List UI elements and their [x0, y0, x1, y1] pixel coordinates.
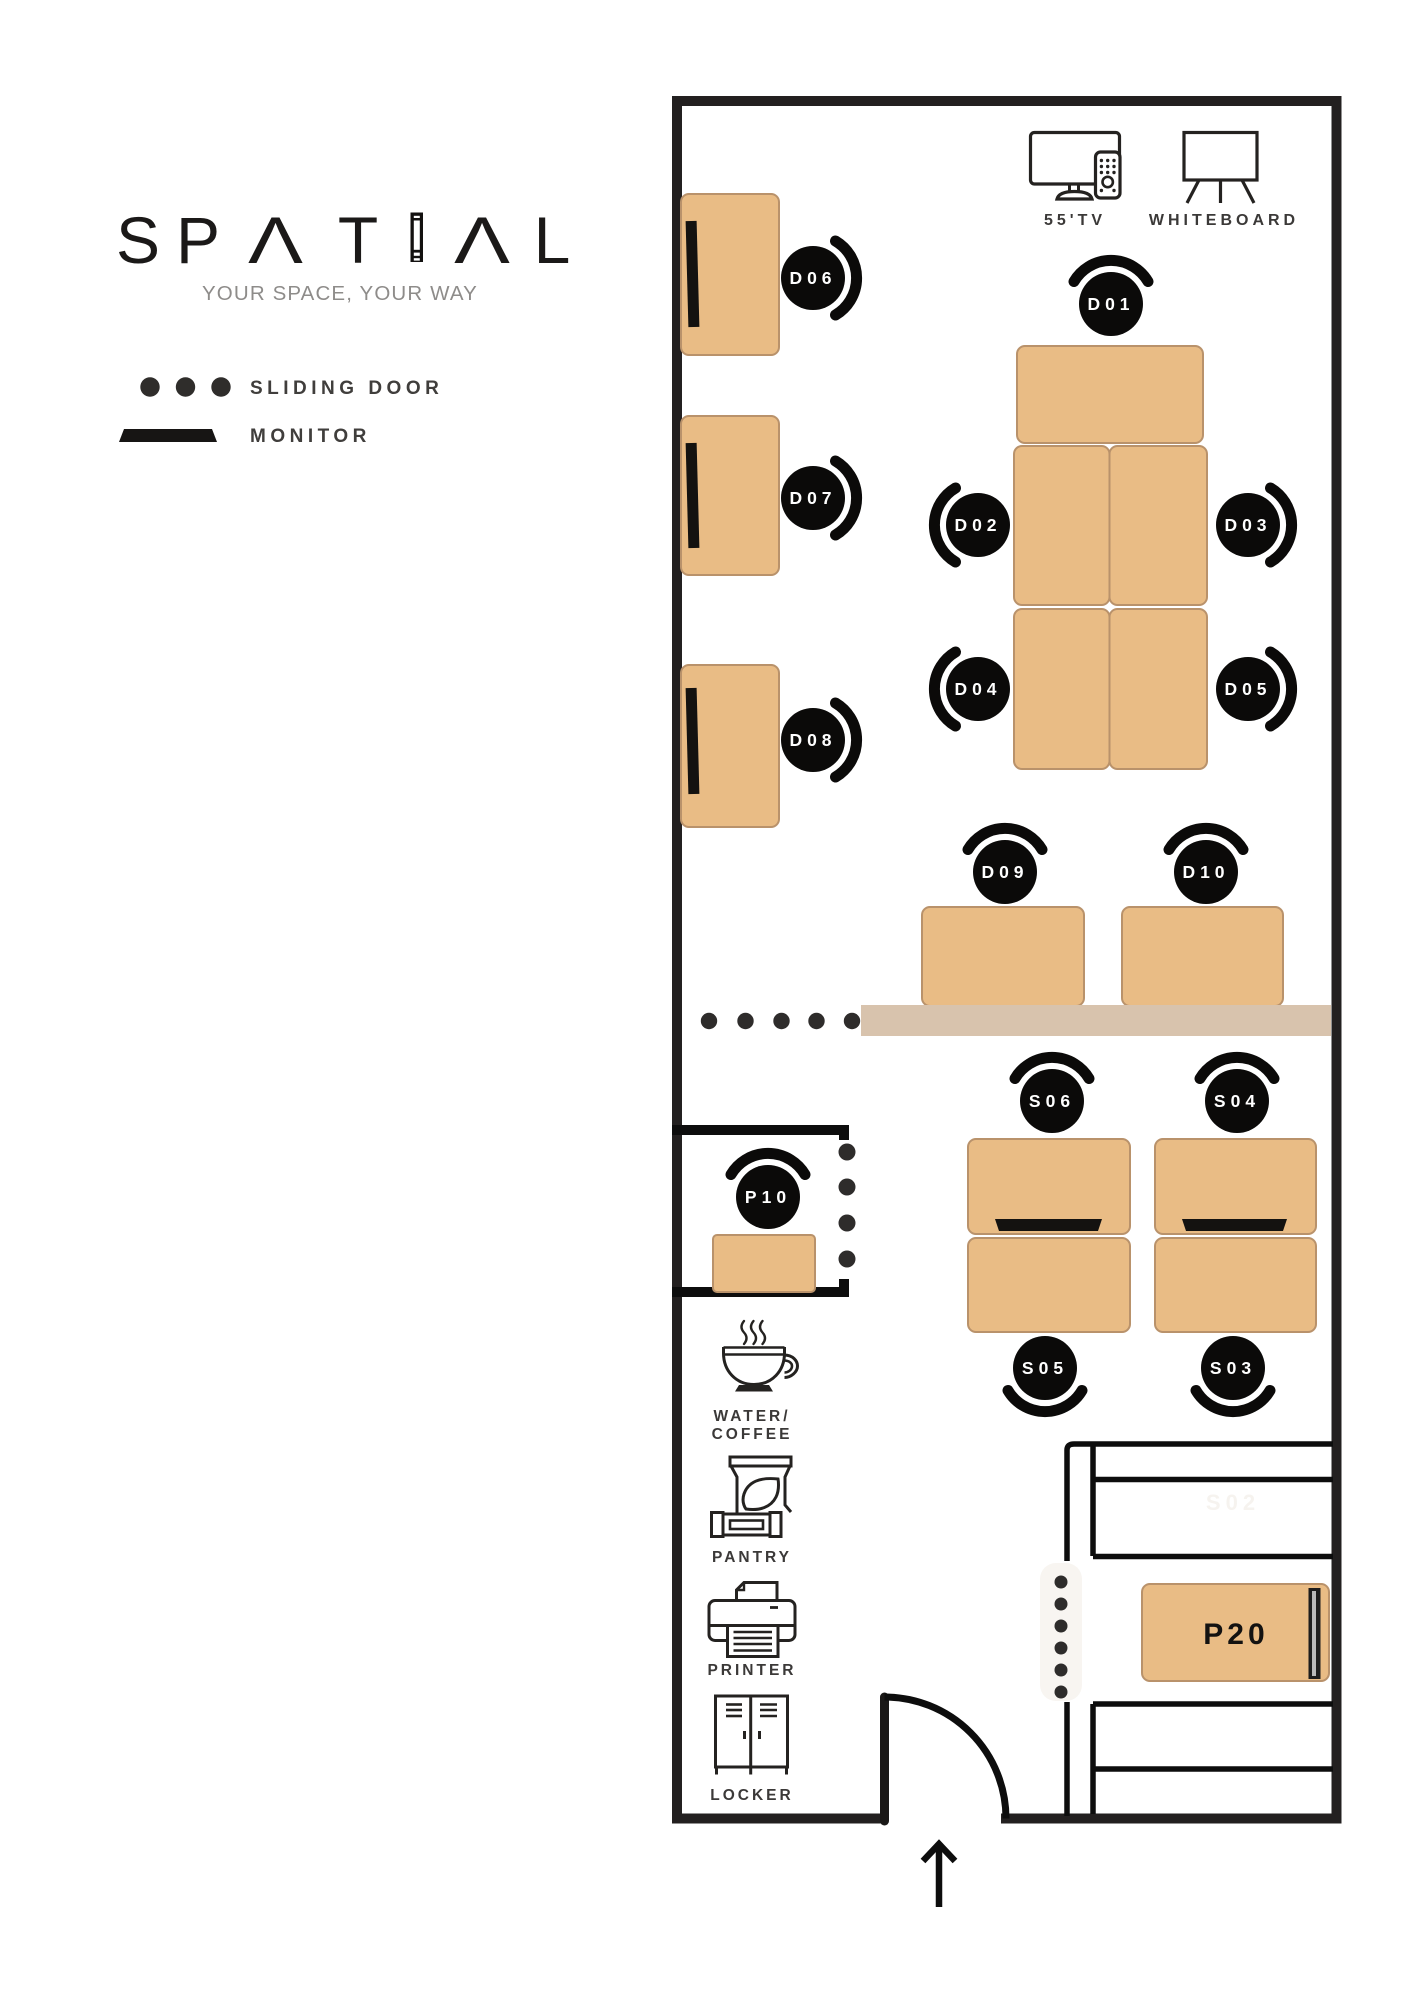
svg-text:WATER/: WATER/	[713, 1408, 790, 1425]
svg-text:L: L	[534, 203, 571, 277]
svg-text:Λ: Λ	[454, 203, 510, 277]
svg-text:D05: D05	[1224, 679, 1271, 699]
svg-text:55'TV: 55'TV	[1044, 212, 1106, 229]
svg-text:S: S	[116, 203, 160, 277]
svg-text:P: P	[176, 203, 220, 277]
svg-text:S05: S05	[1022, 1358, 1068, 1378]
svg-text:MONITOR: MONITOR	[250, 426, 371, 447]
svg-text:D10: D10	[1182, 862, 1229, 882]
svg-text:S06: S06	[1029, 1091, 1075, 1111]
svg-text:D04: D04	[954, 679, 1001, 699]
svg-text:D01: D01	[1087, 294, 1134, 314]
svg-text:S03: S03	[1210, 1358, 1256, 1378]
svg-text:D09: D09	[981, 862, 1028, 882]
svg-text:T: T	[338, 203, 378, 277]
svg-text:PRINTER: PRINTER	[707, 1662, 796, 1679]
svg-text:D02: D02	[954, 515, 1001, 535]
svg-text:D07: D07	[789, 488, 836, 508]
svg-text:P20: P20	[1203, 1618, 1268, 1651]
svg-text:P10: P10	[745, 1187, 791, 1207]
svg-text:S04: S04	[1214, 1091, 1260, 1111]
svg-text:D06: D06	[789, 268, 836, 288]
svg-text:S02: S02	[1206, 1490, 1260, 1515]
svg-text:SLIDING DOOR: SLIDING DOOR	[250, 378, 443, 399]
svg-text:D08: D08	[789, 730, 836, 750]
svg-text:D03: D03	[1224, 515, 1271, 535]
svg-text:WHITEBOARD: WHITEBOARD	[1149, 212, 1299, 229]
svg-text:COFFEE: COFFEE	[712, 1426, 793, 1443]
svg-text:Λ: Λ	[248, 203, 303, 277]
svg-text:YOUR SPACE, YOUR WAY: YOUR SPACE, YOUR WAY	[202, 282, 482, 305]
svg-text:LOCKER: LOCKER	[710, 1787, 793, 1804]
svg-text:PANTRY: PANTRY	[712, 1549, 792, 1566]
